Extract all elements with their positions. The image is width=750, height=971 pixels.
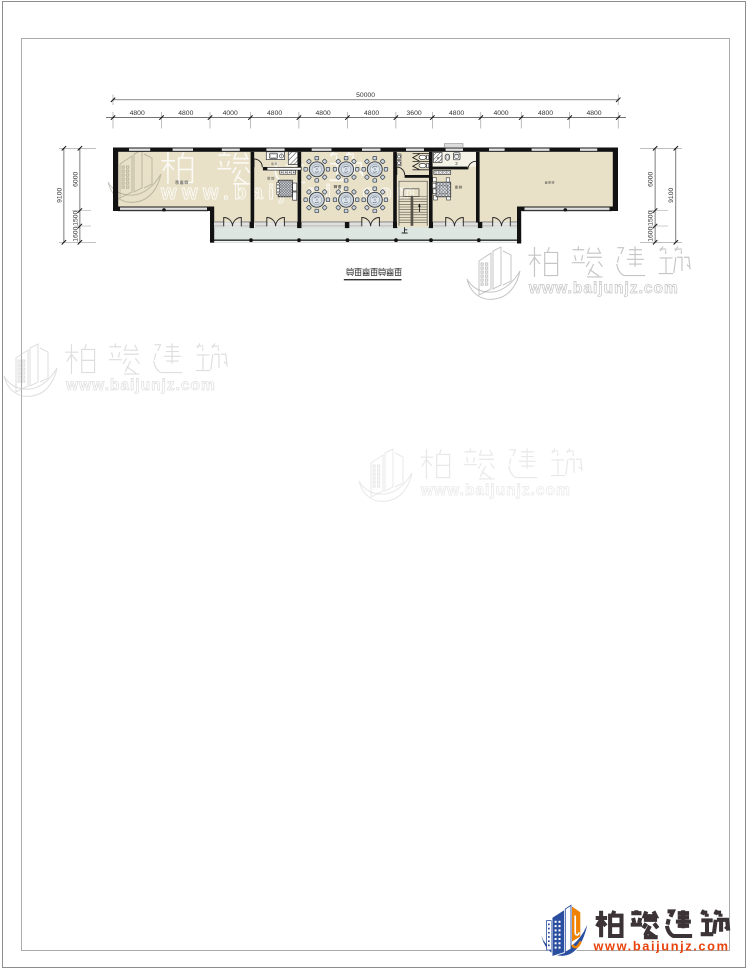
svg-text:4800: 4800	[178, 110, 193, 117]
svg-text:6000: 6000	[648, 172, 655, 187]
svg-text:4000: 4000	[223, 110, 238, 117]
svg-text:4000: 4000	[493, 110, 508, 117]
svg-text:1500: 1500	[648, 210, 655, 225]
svg-text:9100: 9100	[668, 188, 675, 203]
svg-text:1500: 1500	[72, 210, 79, 225]
svg-text:4800: 4800	[267, 110, 282, 117]
svg-text:4800: 4800	[130, 110, 145, 117]
svg-text:4800: 4800	[364, 110, 379, 117]
svg-text:www.baijunjz.com: www.baijunjz.com	[593, 939, 730, 954]
svg-text:4800: 4800	[538, 110, 553, 117]
svg-text:1600: 1600	[648, 226, 655, 241]
svg-text:9100: 9100	[56, 188, 63, 203]
svg-text:4800: 4800	[586, 110, 601, 117]
svg-text:1600: 1600	[72, 226, 79, 241]
svg-text:50000: 50000	[356, 92, 375, 99]
svg-text:4800: 4800	[316, 110, 331, 117]
svg-text:4800: 4800	[449, 110, 464, 117]
svg-text:6000: 6000	[72, 172, 79, 187]
svg-text:3600: 3600	[407, 110, 422, 117]
